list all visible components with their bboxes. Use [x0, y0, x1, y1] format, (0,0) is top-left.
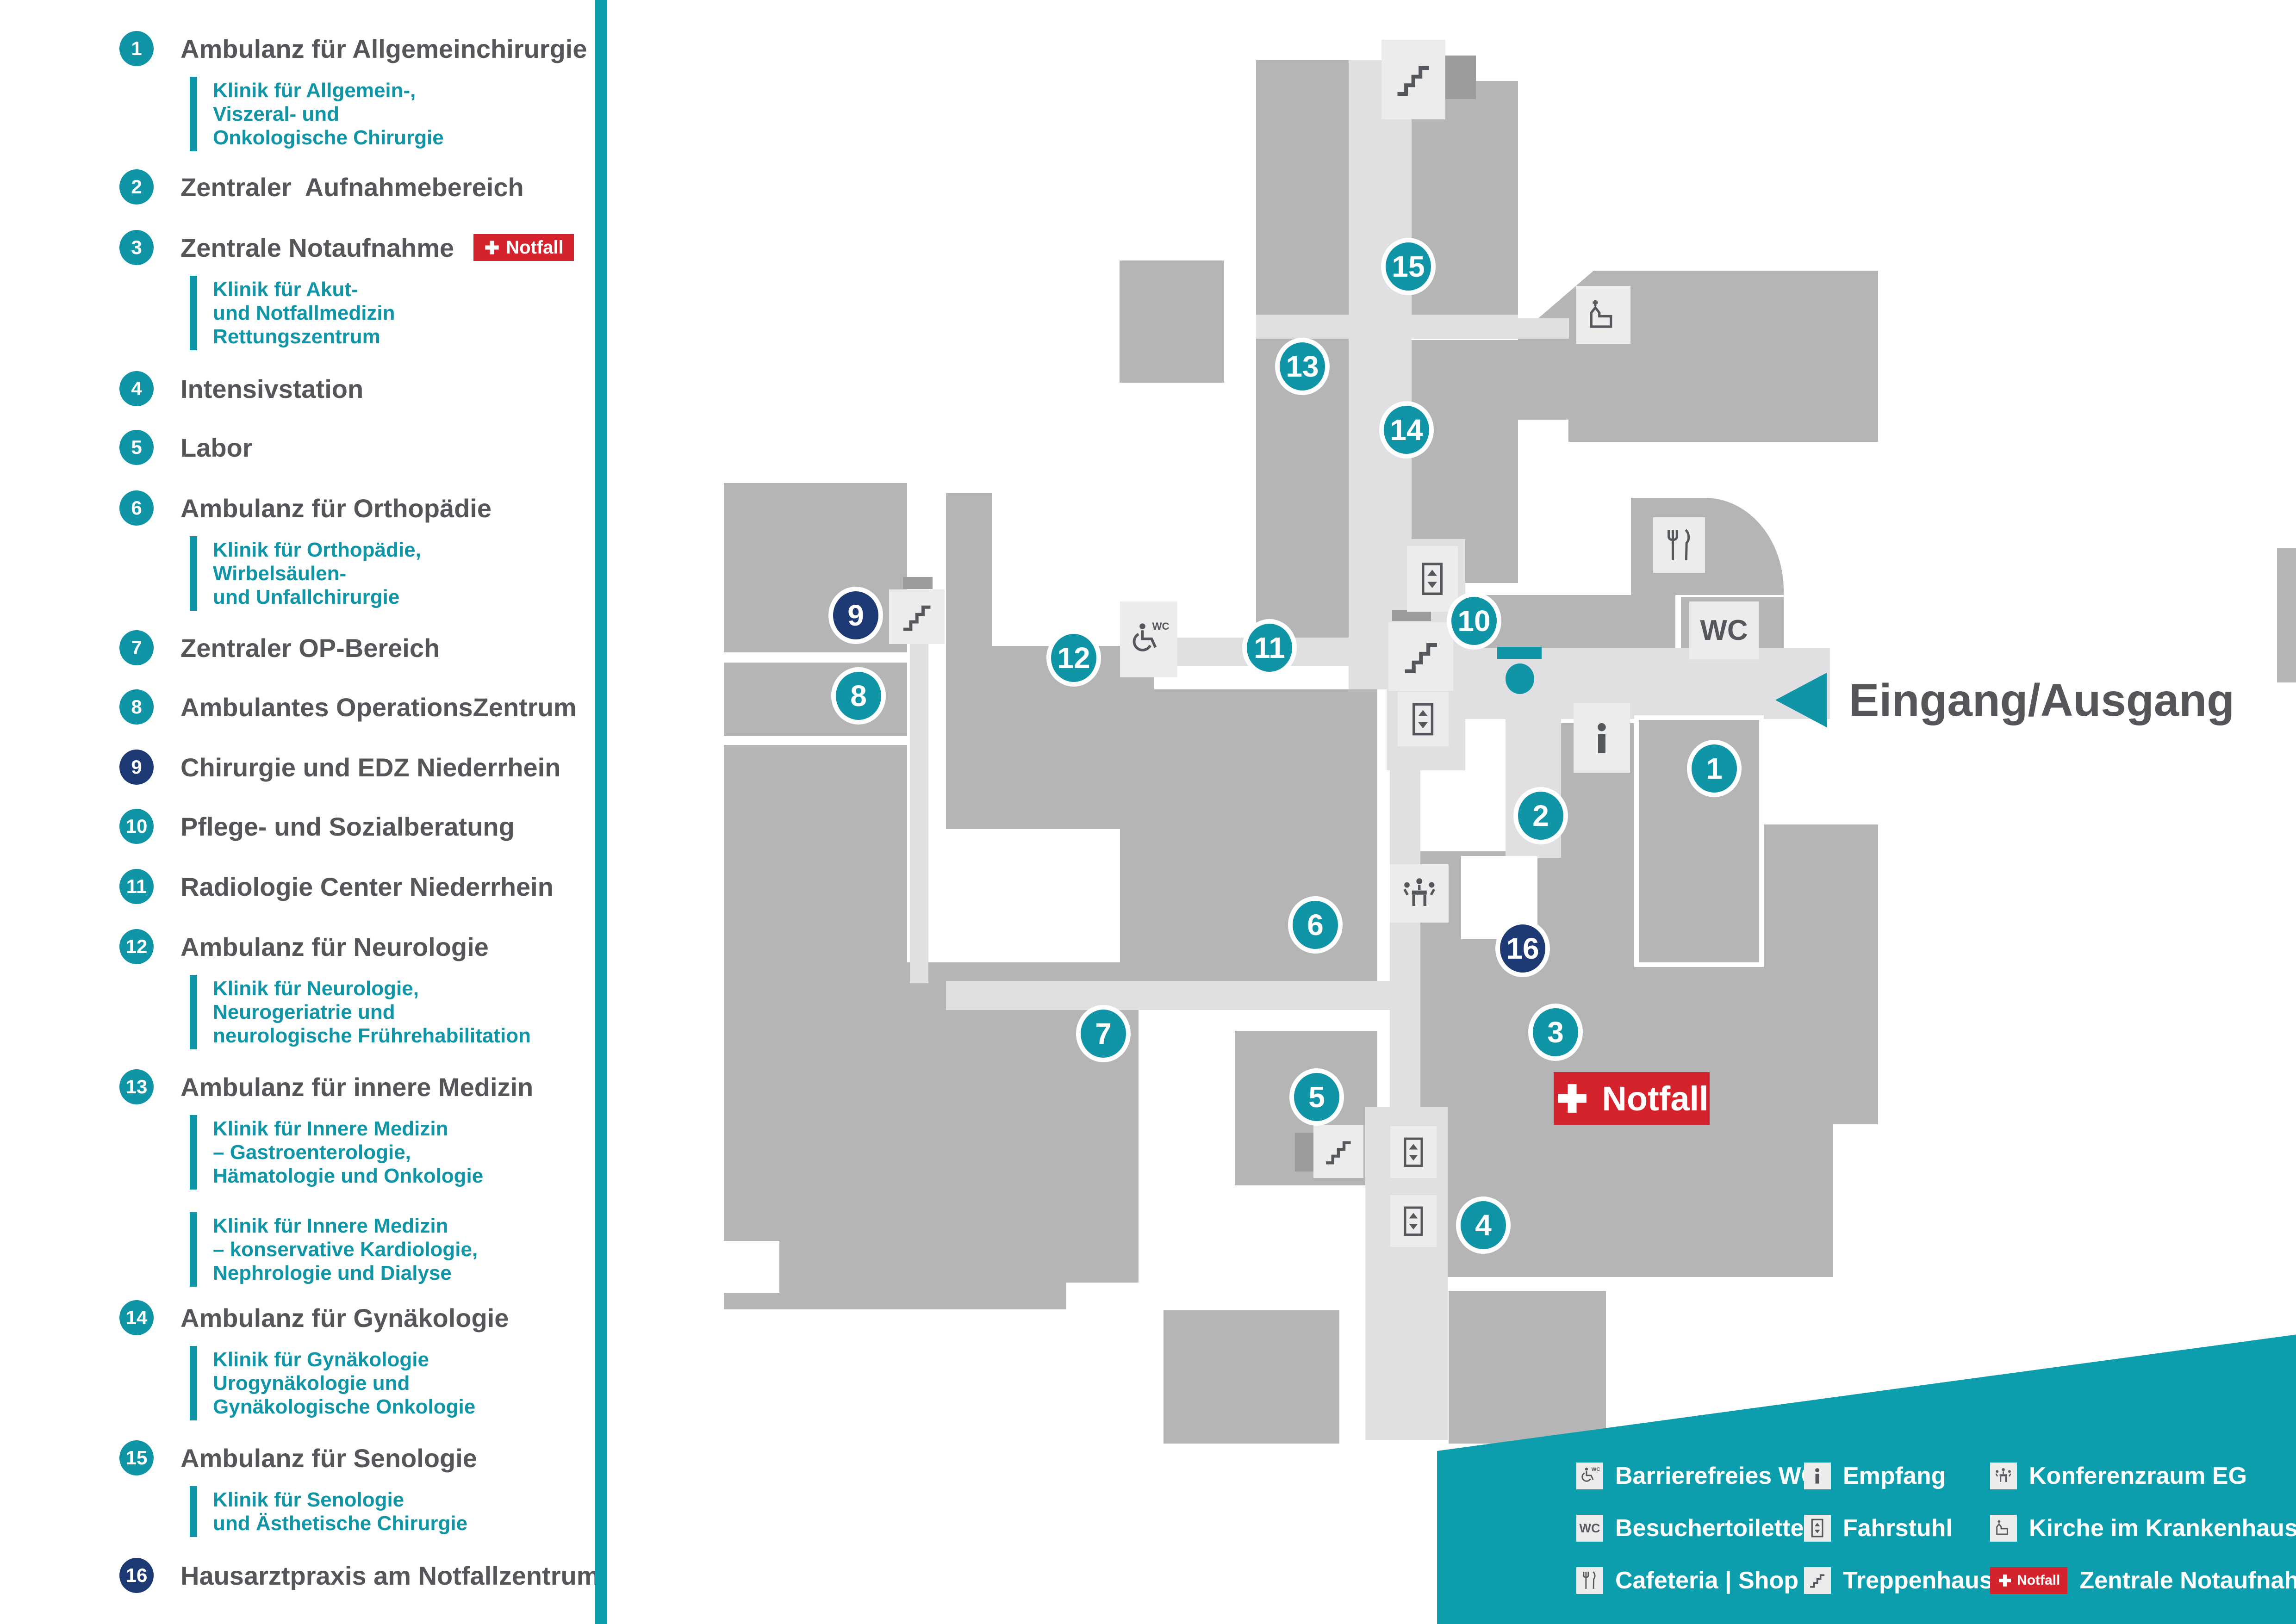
sidebar-item-number: 2	[119, 169, 154, 205]
sidebar-item-number: 16	[119, 1558, 154, 1593]
sidebar-item-sublabel: Klinik für Akut-und NotfallmedizinRettun…	[190, 276, 395, 350]
legend-item: WCBesuchertoiletten	[1576, 1514, 1818, 1542]
sidebar-divider	[595, 0, 607, 1624]
legend-item-label: Cafeteria | Shop	[1615, 1567, 1798, 1594]
church-icon	[1576, 286, 1630, 344]
sidebar-item-4: 4Intensivstation	[119, 371, 363, 406]
notfall-badge-label: Notfall	[1602, 1079, 1708, 1118]
sidebar-legend: 1Ambulanz für AllgemeinchirurgieKlinik f…	[0, 0, 595, 1624]
courtyard-notch	[1066, 1283, 1140, 1310]
sidebar-item-number: 3	[119, 230, 154, 265]
sidebar-item-number: 7	[119, 630, 154, 665]
sidebar-item-sublabel: Klinik für Neurologie,Neurogeriatrie und…	[190, 975, 531, 1049]
legend-item-label: Besuchertoiletten	[1615, 1514, 1818, 1542]
sidebar-item-sublabel: Klinik für Innere Medizin– konservative …	[190, 1212, 478, 1287]
sidebar-item-sublabel: Klinik für GynäkologieUrogynäkologie und…	[190, 1346, 475, 1420]
notfall-badge-label: Notfall	[506, 237, 563, 258]
sidebar-item-label: Ambulanz für Allgemeinchirurgie	[180, 34, 587, 64]
sidebar-item-label: Ambulanz für Senologie	[180, 1443, 477, 1473]
sidebar-item-label: Zentrale Notaufnahme	[180, 233, 454, 263]
sidebar-item-number: 11	[119, 869, 154, 904]
building	[1449, 1291, 1606, 1444]
legend-item: WCBarrierefreies WC	[1576, 1462, 1818, 1490]
sidebar-item-sublabel: Klinik für Senologieund Ästhetische Chir…	[190, 1486, 467, 1537]
conference-icon	[1390, 864, 1449, 923]
notfall-badge: Notfall	[1554, 1072, 1710, 1125]
sidebar-item-label: Ambulanz für Neurologie	[180, 932, 489, 962]
wheelchair-wc-icon: WC	[1120, 601, 1177, 677]
stairs-icon	[1804, 1567, 1831, 1594]
legend-item-label: Barrierefreies WC	[1615, 1462, 1818, 1490]
sidebar-item-16: 16Hausarztpraxis am Notfallzentrum	[119, 1558, 600, 1593]
notfall-badge: Notfall	[473, 234, 573, 261]
info-icon	[1574, 703, 1630, 773]
legend-item-label: Konferenzraum EG	[2029, 1462, 2247, 1490]
map-marker-16: 16	[1495, 920, 1550, 977]
dark-accent	[903, 577, 933, 589]
legend-item-label: Empfang	[1843, 1462, 1946, 1490]
sidebar-item-number: 14	[119, 1300, 154, 1335]
sidebar-item-number: 1	[119, 31, 154, 66]
info-icon	[1804, 1463, 1831, 1489]
map-marker-15: 15	[1381, 238, 1436, 295]
sidebar-item-label: Radiologie Center Niederrhein	[180, 872, 554, 902]
sidebar-item-6: 6Ambulanz für Orthopädie	[119, 490, 492, 526]
sidebar-item-9: 9Chirurgie und EDZ Niederrhein	[119, 750, 560, 785]
svg-text:WC: WC	[1592, 1467, 1600, 1472]
sidebar-item-label: Ambulanz für Orthopädie	[180, 493, 492, 523]
building	[1164, 1310, 1339, 1444]
sidebar-item-1: 1Ambulanz für Allgemeinchirurgie	[119, 31, 587, 66]
sidebar-item-label: Pflege- und Sozialberatung	[180, 812, 515, 842]
sidebar-item-label: Hausarztpraxis am Notfallzentrum	[180, 1561, 600, 1591]
sidebar-item-label: Labor	[180, 433, 253, 463]
corridor	[946, 981, 1390, 1010]
stairs-icon	[1388, 622, 1453, 691]
sidebar-item-5: 5Labor	[119, 430, 253, 465]
map-marker-5: 5	[1289, 1068, 1344, 1126]
building	[724, 962, 1139, 1309]
building	[2277, 548, 2296, 682]
legend-item: Cafeteria | Shop	[1576, 1567, 1798, 1594]
church-building	[1518, 271, 1878, 442]
legend-item: Empfang	[1804, 1462, 1946, 1490]
entrance-marker-dot	[1506, 663, 1534, 694]
sidebar-item-number: 9	[119, 750, 154, 785]
corridor	[1518, 318, 1569, 339]
elevator-icon	[1804, 1515, 1831, 1542]
map-marker-1: 1	[1687, 740, 1742, 797]
sidebar-item-number: 12	[119, 929, 154, 964]
sidebar-item-7: 7Zentraler OP-Bereich	[119, 630, 440, 665]
sidebar-item-13: 13Ambulanz für innere Medizin	[119, 1069, 533, 1104]
hospital-floorplan: 1Ambulanz für AllgemeinchirurgieKlinik f…	[0, 0, 2296, 1624]
sidebar-item-2: 2Zentraler Aufnahmebereich	[119, 169, 524, 205]
map-marker-12: 12	[1046, 629, 1101, 687]
map-marker-7: 7	[1076, 1005, 1131, 1062]
sidebar-item-10: 10Pflege- und Sozialberatung	[119, 809, 515, 844]
sidebar-item-12: 12Ambulanz für Neurologie	[119, 929, 489, 964]
legend-item: Fahrstuhl	[1804, 1514, 1953, 1542]
building	[724, 931, 872, 963]
map-marker-4: 4	[1456, 1196, 1511, 1254]
conference-icon	[1990, 1463, 2017, 1489]
corridor	[1256, 315, 1518, 339]
cafeteria-icon	[1576, 1567, 1603, 1594]
sidebar-item-number: 6	[119, 490, 154, 526]
svg-text:WC: WC	[1152, 620, 1170, 632]
map-marker-6: 6	[1288, 896, 1343, 954]
building	[1256, 60, 1349, 315]
church-icon	[1990, 1515, 2017, 1542]
cross-icon	[1997, 1573, 2012, 1588]
courtyard-notch	[1833, 1124, 1878, 1277]
dark-accent	[1295, 1133, 1313, 1172]
sidebar-item-number: 13	[119, 1069, 154, 1104]
sidebar-item-3: 3Zentrale NotaufnahmeNotfall	[119, 230, 574, 265]
corridor	[910, 643, 928, 983]
elevator-icon	[1390, 1195, 1437, 1247]
map-marker-3: 3	[1528, 1004, 1583, 1061]
map-marker-11: 11	[1242, 619, 1297, 676]
stairs-icon	[1381, 40, 1445, 119]
legend-item: Kirche im Krankenhaus	[1990, 1514, 2296, 1542]
sidebar-item-sublabel: Klinik für Innere Medizin– Gastroenterol…	[190, 1115, 483, 1190]
wc-icon: WC	[1576, 1515, 1603, 1542]
entrance-marker-bar	[1497, 647, 1542, 659]
notfall-badge-label: Notfall	[2017, 1573, 2060, 1588]
stairs-icon	[889, 589, 945, 644]
legend-item-label: Treppenhaus	[1843, 1567, 1993, 1594]
sidebar-item-number: 5	[119, 430, 154, 465]
sidebar-item-label: Zentraler Aufnahmebereich	[180, 172, 524, 202]
sidebar-item-number: 10	[119, 809, 154, 844]
elevator-icon	[1390, 1126, 1437, 1178]
map-marker-8: 8	[831, 667, 886, 725]
sidebar-item-label: Ambulanz für Gynäkologie	[180, 1303, 509, 1333]
building	[1120, 260, 1224, 383]
sidebar-item-label: Ambulantes OperationsZentrum	[180, 692, 577, 722]
map-marker-14: 14	[1379, 401, 1434, 459]
sidebar-item-8: 8Ambulantes OperationsZentrum	[119, 689, 577, 725]
legend-item-label: Kirche im Krankenhaus	[2029, 1514, 2296, 1542]
sidebar-item-sublabel: Klinik für Orthopädie,Wirbelsäulen-und U…	[190, 536, 421, 611]
legend-item-label: Zentrale Notaufnahme	[2079, 1567, 2296, 1594]
legend-item: NotfallZentrale Notaufnahme	[1990, 1567, 2296, 1594]
sidebar-item-number: 8	[119, 689, 154, 725]
sidebar-item-15: 15Ambulanz für Senologie	[119, 1440, 477, 1475]
map-marker-13: 13	[1275, 338, 1330, 395]
sidebar-item-number: 15	[119, 1440, 154, 1475]
wheelchair-wc-icon: WC	[1576, 1463, 1603, 1489]
sidebar-item-number: 4	[119, 371, 154, 406]
sidebar-item-label: Intensivstation	[180, 374, 363, 404]
legend-item-label: Fahrstuhl	[1843, 1514, 1953, 1542]
map-marker-9: 9	[828, 587, 883, 644]
sidebar-item-11: 11Radiologie Center Niederrhein	[119, 869, 554, 904]
notfall-badge: Notfall	[1990, 1567, 2067, 1594]
wc-icon: WC	[1689, 601, 1759, 659]
cross-icon	[484, 239, 500, 256]
stairs-icon	[1313, 1125, 1363, 1178]
elevator-icon	[1407, 546, 1458, 612]
entrance-label: Eingang/Ausgang	[1849, 672, 2234, 728]
sidebar-item-label: Zentraler OP-Bereich	[180, 633, 440, 663]
building-dark-block	[1445, 56, 1476, 99]
legend-item: Konferenzraum EG	[1990, 1462, 2247, 1490]
map-marker-10: 10	[1447, 592, 1501, 650]
courtyard-notch	[724, 1241, 779, 1293]
sidebar-item-14: 14Ambulanz für Gynäkologie	[119, 1300, 509, 1335]
legend-item: Treppenhaus	[1804, 1567, 1993, 1594]
sidebar-item-label: Ambulanz für innere Medizin	[180, 1072, 533, 1102]
entrance-arrow-icon	[1775, 673, 1827, 727]
map-marker-2: 2	[1513, 787, 1568, 844]
cross-icon	[1555, 1081, 1590, 1116]
cafeteria-icon	[1653, 517, 1705, 573]
elevator-icon	[1398, 692, 1449, 746]
sidebar-item-label: Chirurgie und EDZ Niederrhein	[180, 752, 560, 782]
sidebar-item-sublabel: Klinik für Allgemein-,Viszeral- undOnkol…	[190, 77, 444, 151]
